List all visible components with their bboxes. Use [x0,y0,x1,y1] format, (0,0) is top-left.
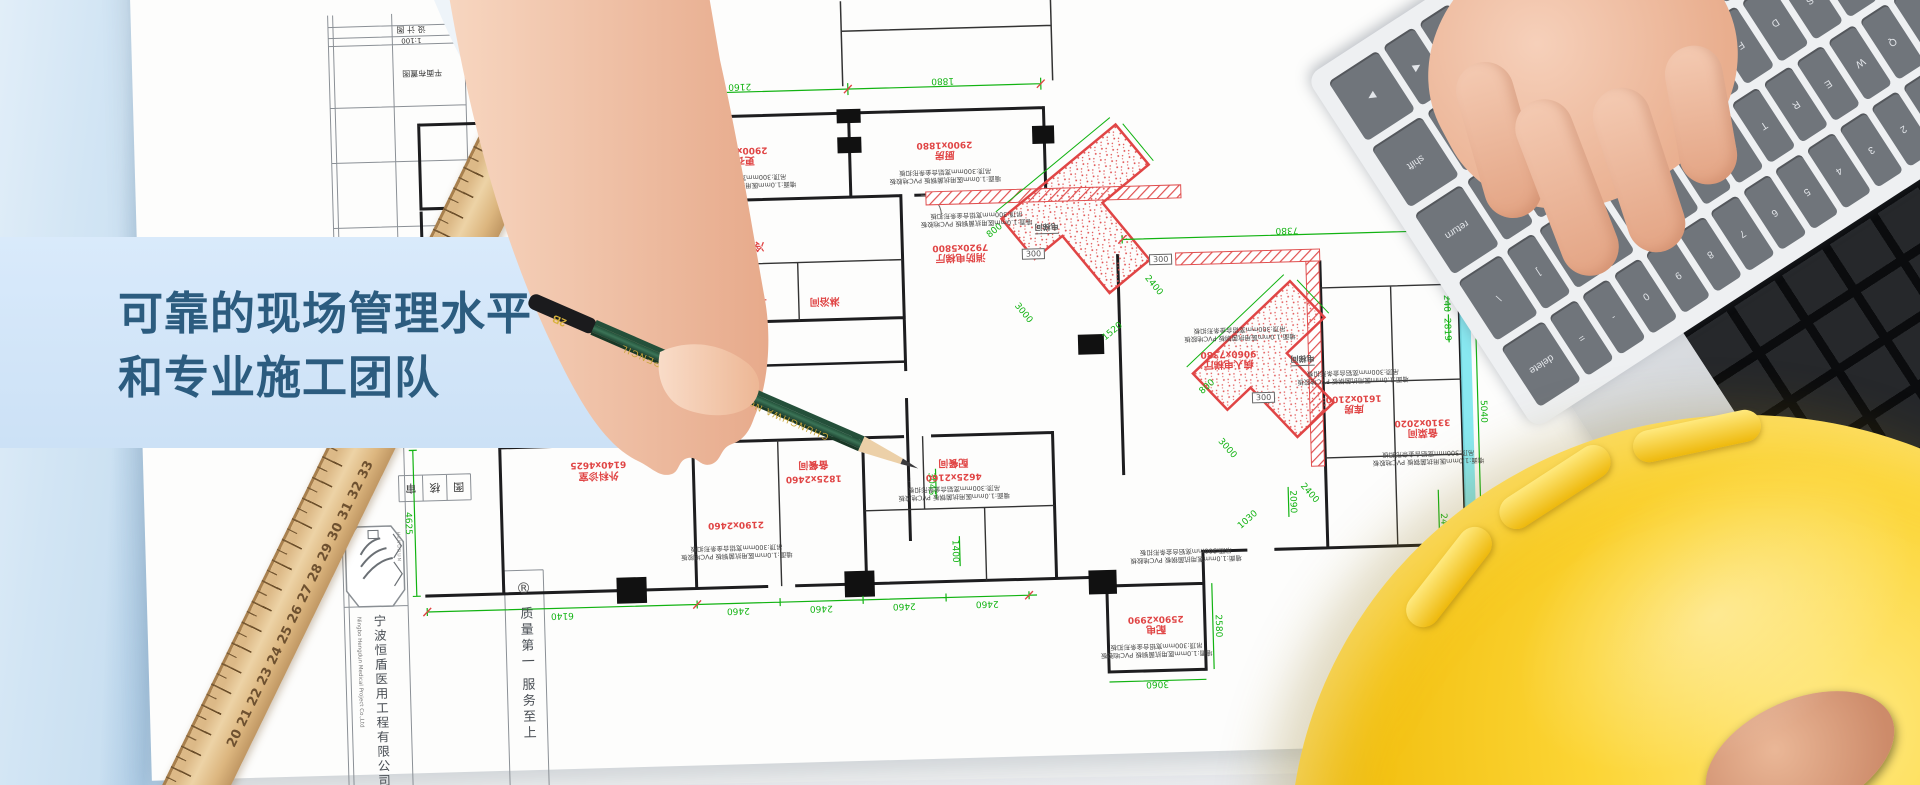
ruler-number: 26 [281,601,310,627]
ruler-number: 21 [231,705,260,731]
ruler-number: 27 [291,581,320,607]
ruler-number: 46 [520,111,549,137]
plan-partitions [733,244,1467,587]
ruler-number: 25 [271,622,300,648]
ruler-number: 24 [261,643,290,669]
ruler-number: 45 [510,132,539,158]
hero-banner: 设 计 图 1:100 平面布置图 审 核 图 HENGDUN 宁波恒盾医用工程… [0,0,1920,785]
ruler-number: 22 [241,684,270,710]
ruler-number: 29 [311,539,340,565]
ruler-number: 44 [500,153,529,179]
ruler-number: 43 [490,173,519,199]
ruler-number: 48 [540,70,569,96]
ruler-number: 47 [530,91,559,117]
headline-panel: 可靠的现场管理水平 和专业施工团队 [0,237,620,448]
headline-line2: 和专业施工团队 [118,341,440,406]
ruler-number: 20 [221,725,250,751]
company-stamp-icon [345,526,405,608]
structural-columns [603,102,1117,608]
top-detail-box [839,0,1053,86]
ruler-number: 30 [321,519,350,545]
ruler-number: 28 [301,560,330,586]
ruler-number: 33 [352,457,381,483]
ruler-number: 32 [342,477,371,503]
ruler-number: 23 [251,663,280,689]
shaft-section-1 [996,114,1201,316]
ruler-number: 31 [332,498,361,524]
shaft-section-2 [1187,270,1376,459]
headline-line1: 可靠的现场管理水平 [118,277,532,342]
